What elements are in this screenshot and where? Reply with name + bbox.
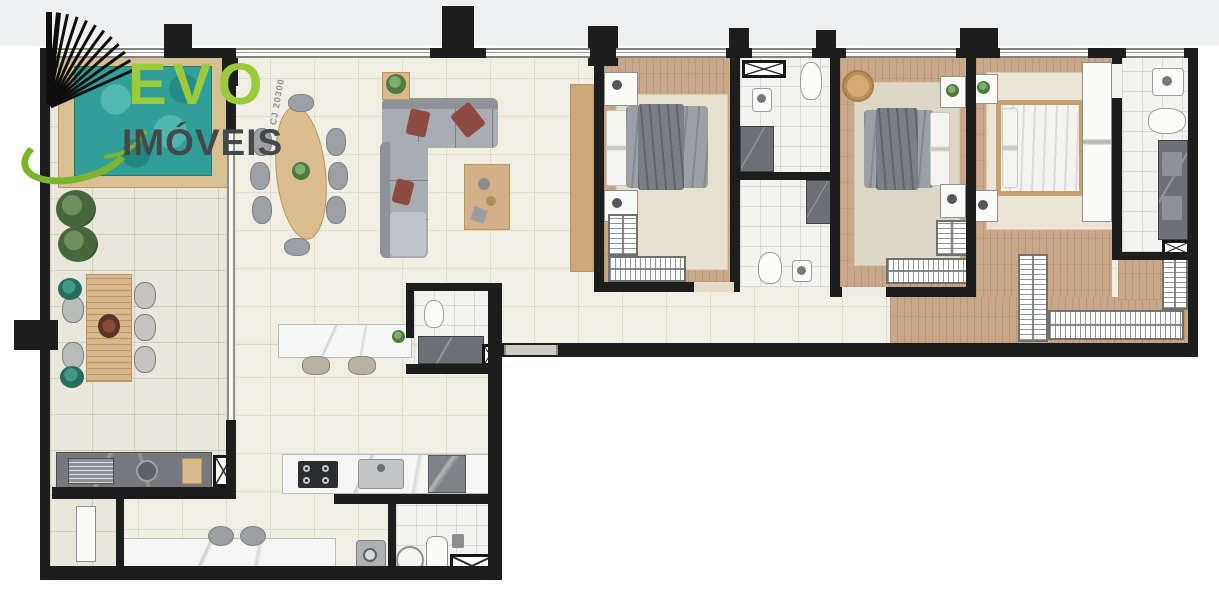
outdoor-chair-5 <box>62 342 84 369</box>
wall-bottom-left-wing <box>40 566 498 580</box>
logo-brand-text: EVO <box>128 56 269 114</box>
bar-stool-1 <box>302 356 330 375</box>
bed1-pillows <box>606 110 628 186</box>
master-lamp <box>978 200 988 210</box>
island-plant <box>392 330 405 343</box>
wall-divider-terrace-bottom <box>226 420 236 490</box>
window-living-2 <box>486 48 590 58</box>
master-nightstand-plant <box>977 81 990 94</box>
wall-bed1-bath <box>730 56 740 282</box>
wall-left <box>40 48 50 572</box>
service-door-leaf <box>76 506 96 562</box>
wall-rightwing-bottom <box>488 343 1198 357</box>
kitchen-island <box>278 324 412 358</box>
coffee-table-decor-1 <box>478 178 490 190</box>
cooktop <box>298 461 338 488</box>
outdoor-chair-4 <box>62 296 84 323</box>
master-shower-bench-2 <box>1162 196 1182 220</box>
wall-powder-left <box>406 283 414 338</box>
bath2-faucet <box>797 266 806 275</box>
closet-wardrobe-bottom <box>1048 310 1184 340</box>
duct-shaft-bath1 <box>742 60 786 78</box>
bed1-throw <box>638 104 684 190</box>
master-bath-door-opening[interactable] <box>1112 64 1122 98</box>
bed1-nightstand-decor <box>612 80 622 90</box>
bedroom1-wardrobe-small <box>608 214 638 256</box>
wall-powder-bottom <box>406 364 502 374</box>
pillar-bed2 <box>816 30 836 56</box>
outdoor-chair-1 <box>134 282 156 309</box>
tv-panel <box>570 84 594 272</box>
bedroom2-wardrobe-small <box>936 220 968 256</box>
pillar-bed1 <box>588 26 618 66</box>
outdoor-chair-3 <box>134 346 156 373</box>
wall-bath-divider <box>736 172 836 180</box>
bath1-faucet <box>757 94 766 103</box>
powder-shower <box>418 336 484 364</box>
master-toilet <box>1148 108 1186 134</box>
bed2-lamp <box>947 194 957 204</box>
bath1-toilet <box>800 62 822 100</box>
gourmet-round-sink <box>136 460 158 482</box>
bed1-door-opening[interactable] <box>694 282 734 292</box>
bedroom2-wardrobe <box>886 258 974 284</box>
terrace-plant-2 <box>58 226 98 262</box>
floor-plan-canvas: EVO IMÓVEIS CJ 20300 <box>0 0 1219 591</box>
wall-bed2-master <box>966 56 976 297</box>
cutting-board <box>182 458 202 484</box>
dining-chair-top <box>288 94 314 112</box>
pillar-living-base <box>428 48 488 58</box>
entry-door-opening[interactable] <box>504 345 558 355</box>
terrace-plant-1 <box>56 190 96 228</box>
glass-door-terrace[interactable] <box>227 130 235 420</box>
terrace-plant-4 <box>60 366 84 388</box>
wall-bath-bed2 <box>830 56 840 295</box>
master-wardrobe-panel <box>1082 62 1112 222</box>
table-centerpiece-flowers <box>98 314 120 338</box>
gourmet-counter-base <box>52 487 236 499</box>
dining-chair-r3 <box>326 196 346 224</box>
window-bedroom2 <box>846 48 956 58</box>
sofa-chaise-cushion <box>390 212 426 256</box>
wicker-chair <box>842 70 874 102</box>
master-faucet <box>1162 76 1172 86</box>
bed1-lamp <box>612 198 622 208</box>
window-bedroom1 <box>616 48 726 58</box>
window-bathrooms <box>752 48 812 58</box>
bed1-nightstand-top <box>604 72 638 106</box>
side-table-plant <box>386 74 406 94</box>
pillar-master <box>960 28 998 56</box>
wall-masterbath-bottom <box>1112 252 1198 260</box>
bath1-shower <box>740 126 774 172</box>
bar-stool-2 <box>348 356 376 375</box>
wall-laundry-top <box>334 494 502 504</box>
logo-subtitle-text: IMÓVEIS <box>122 124 283 161</box>
master-shower-bench-1 <box>1162 152 1182 176</box>
wall-service-room <box>116 499 124 566</box>
outdoor-chair-2 <box>134 314 156 341</box>
counter-basin-1 <box>208 526 234 546</box>
wall-pier-left <box>14 320 58 350</box>
coffee-table-decor-2 <box>486 196 496 206</box>
bedroom1-wardrobe <box>608 256 686 282</box>
bed2-nightstand-plant <box>946 84 959 97</box>
bed2-throw <box>876 108 918 190</box>
bath2-toilet <box>758 252 782 284</box>
laundry-shower-valve <box>452 534 464 548</box>
wall-living-bed1 <box>594 56 604 282</box>
dining-chair-bottom <box>284 238 310 256</box>
dining-chair-l2 <box>250 162 270 190</box>
dining-chair-l3 <box>252 196 272 224</box>
terrace-plant-3 <box>58 278 82 300</box>
grill <box>68 458 114 484</box>
pillar-bath <box>729 28 749 56</box>
bed2-door-opening[interactable] <box>842 287 886 297</box>
bed2-pillows <box>930 112 950 186</box>
powder-toilet <box>424 300 444 328</box>
wall-right <box>1188 48 1198 357</box>
dining-centerpiece-plant <box>292 162 310 180</box>
master-bed-pillows <box>1002 108 1018 188</box>
counter-basin-2 <box>240 526 266 546</box>
window-master <box>1000 48 1088 58</box>
wall-powder-top <box>406 283 502 291</box>
closet-wardrobe-right <box>1162 254 1188 310</box>
wall-lower-right-vertical <box>488 283 502 580</box>
window-master-bath <box>1126 48 1184 58</box>
wall-laundry-divider <box>388 504 396 566</box>
washer-dial <box>363 548 377 562</box>
closet-wardrobe-left <box>1018 254 1048 342</box>
kitchen-faucet <box>377 464 385 472</box>
dining-chair-r1 <box>326 128 346 156</box>
refrigerator <box>428 455 466 493</box>
dining-chair-r2 <box>328 162 348 190</box>
